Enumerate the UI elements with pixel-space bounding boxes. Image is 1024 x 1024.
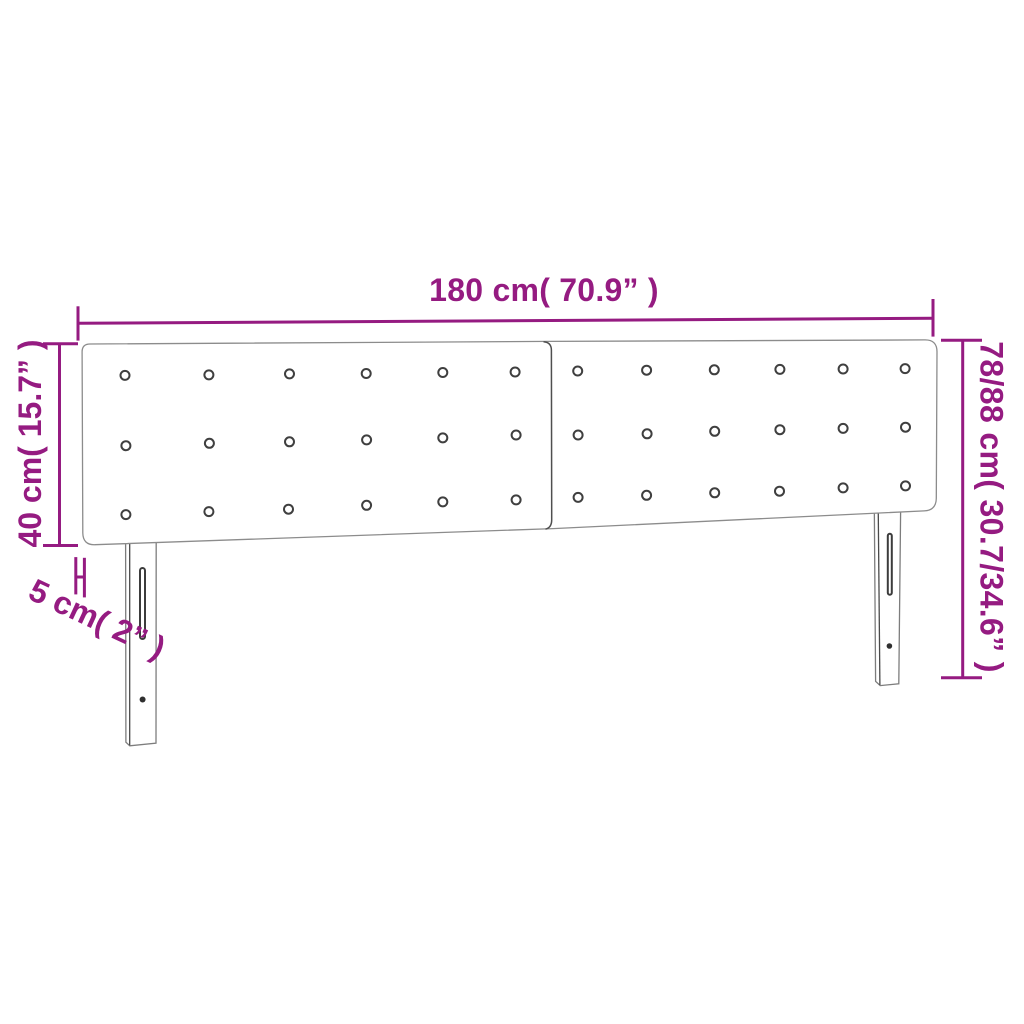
svg-text:180 cm( 70.9” ): 180 cm( 70.9” ): [429, 272, 659, 308]
svg-text:78/88 cm( 30.7/34.6” ): 78/88 cm( 30.7/34.6” ): [974, 341, 1010, 672]
svg-text:40 cm( 15.7” ): 40 cm( 15.7” ): [12, 339, 48, 547]
